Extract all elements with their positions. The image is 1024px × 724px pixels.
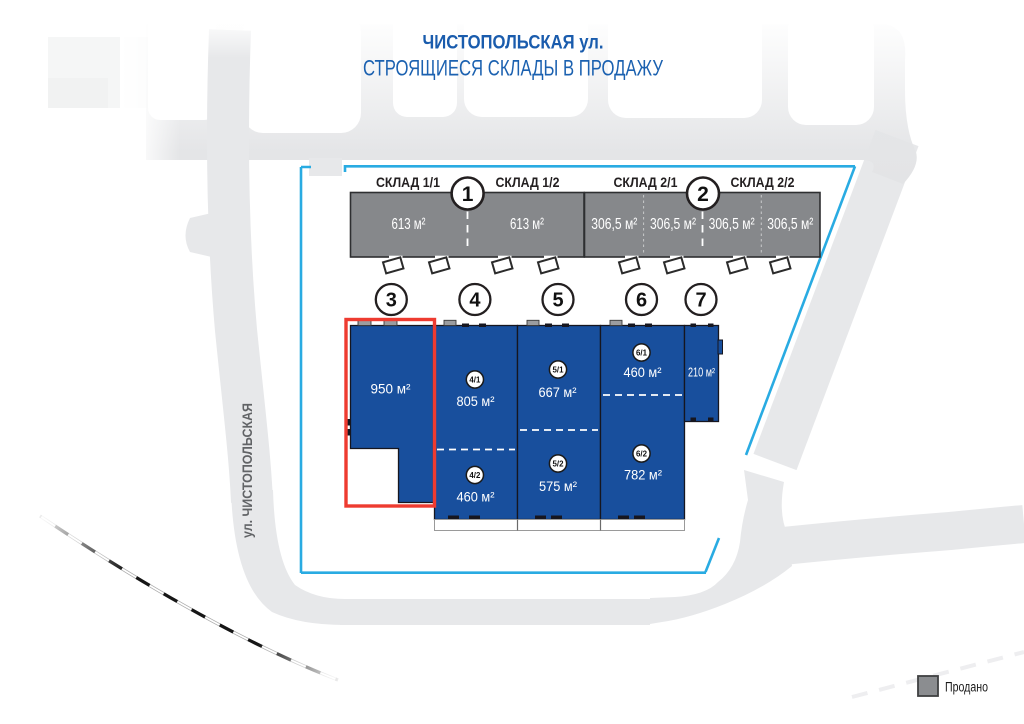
svg-text:460 м²: 460 м² <box>624 364 662 380</box>
svg-text:782 м²: 782 м² <box>624 467 662 483</box>
svg-text:СКЛАД 2/2: СКЛАД 2/2 <box>731 175 795 190</box>
svg-text:СТРОЯЩИЕСЯ СКЛАДЫ В ПРОДАЖУ: СТРОЯЩИЕСЯ СКЛАДЫ В ПРОДАЖУ <box>363 56 664 81</box>
svg-text:306,5 м²: 306,5 м² <box>650 216 697 233</box>
svg-text:667 м²: 667 м² <box>539 384 577 400</box>
svg-text:СКЛАД 1/1: СКЛАД 1/1 <box>376 175 440 190</box>
svg-text:4: 4 <box>469 290 481 312</box>
svg-text:ул. ЧИСТОПОЛЬСКАЯ: ул. ЧИСТОПОЛЬСКАЯ <box>240 403 255 538</box>
svg-text:306,5 м²: 306,5 м² <box>591 216 638 233</box>
svg-text:СКЛАД 2/1: СКЛАД 2/1 <box>614 175 678 190</box>
svg-text:4/1: 4/1 <box>469 374 480 384</box>
svg-text:613 м²: 613 м² <box>392 216 426 233</box>
svg-text:306,5 м²: 306,5 м² <box>767 216 814 233</box>
svg-text:5/2: 5/2 <box>553 458 564 468</box>
svg-text:950 м²: 950 м² <box>371 381 411 397</box>
svg-text:5/1: 5/1 <box>553 364 564 374</box>
svg-text:3: 3 <box>386 290 397 312</box>
svg-text:СКЛАД 1/2: СКЛАД 1/2 <box>496 175 560 190</box>
svg-text:805 м²: 805 м² <box>457 393 495 409</box>
svg-text:306,5 м²: 306,5 м² <box>709 216 756 233</box>
svg-text:7: 7 <box>695 290 706 312</box>
svg-text:Продано: Продано <box>945 680 988 695</box>
svg-text:6/2: 6/2 <box>636 448 647 458</box>
svg-text:4/2: 4/2 <box>469 470 480 480</box>
svg-text:6/1: 6/1 <box>636 347 647 357</box>
svg-text:2: 2 <box>697 183 709 206</box>
svg-text:6: 6 <box>636 290 647 312</box>
svg-text:575 м²: 575 м² <box>539 478 577 494</box>
svg-text:210 м²: 210 м² <box>688 366 715 380</box>
svg-text:ЧИСТОПОЛЬСКАЯ ул.: ЧИСТОПОЛЬСКАЯ ул. <box>423 32 604 54</box>
svg-text:613 м²: 613 м² <box>510 216 544 233</box>
svg-text:5: 5 <box>552 290 563 312</box>
svg-text:460 м²: 460 м² <box>457 489 495 505</box>
svg-text:1: 1 <box>462 183 474 206</box>
